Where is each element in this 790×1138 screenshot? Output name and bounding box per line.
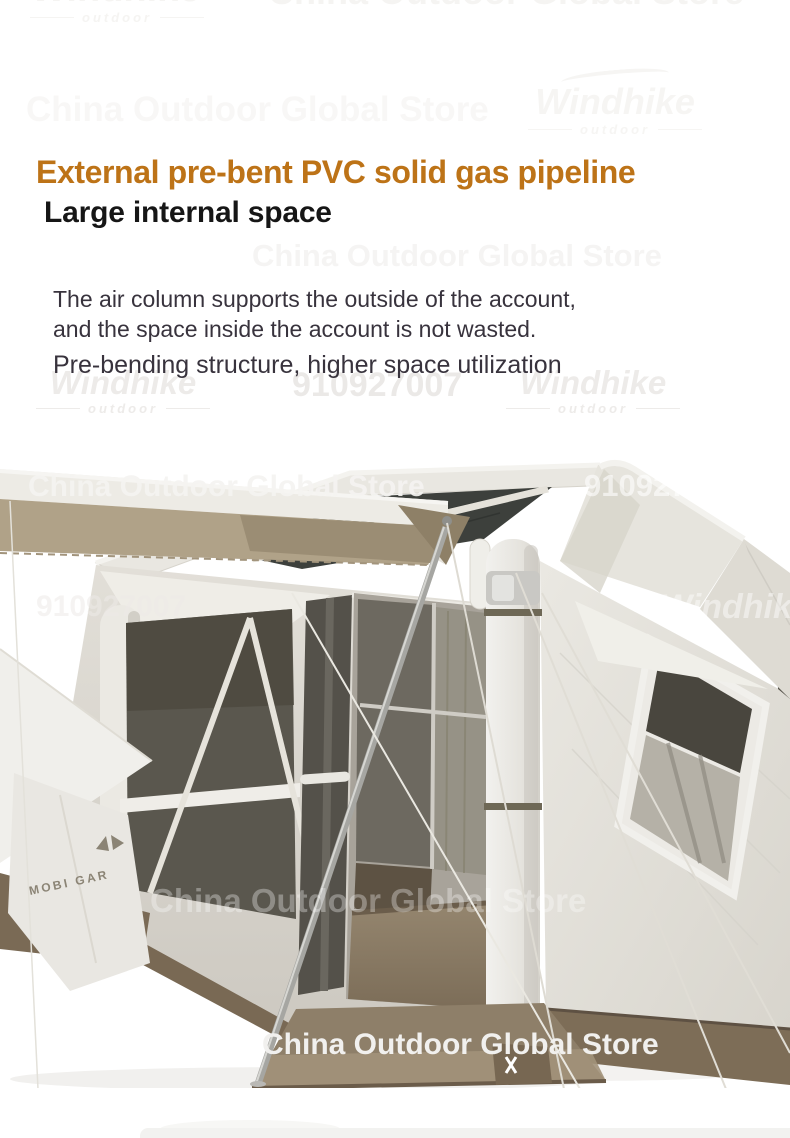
watermark-brand-sub: outdoor [36, 402, 210, 415]
watermark-store-row3: China Outdoor Global Store [252, 240, 662, 271]
watermark-store-photo-bottom: China Outdoor Global Store [262, 1030, 692, 1060]
watermark-store-photo-floor: China Outdoor Global Store [150, 884, 586, 917]
watermark-store-top-right: China Outdoor Global Store [268, 0, 744, 10]
watermark-storeid-photo-top: 910927007 [584, 470, 739, 501]
watermark-windhike-top-left: Windhike outdoor [30, 0, 204, 24]
watermark-store-row2: China Outdoor Global Store [26, 92, 489, 127]
column-strap [484, 803, 542, 810]
watermark-brand-sub: outdoor [30, 11, 204, 24]
body-line-1: The air column supports the outside of t… [53, 284, 576, 314]
body-line-3: Pre-bending structure, higher space util… [53, 349, 576, 381]
watermark-brand-word: Windhike [528, 84, 702, 120]
heading-secondary: Large internal space [44, 196, 332, 230]
watermark-brand-word: Windhike [30, 0, 204, 8]
body-copy: The air column supports the outside of t… [53, 284, 576, 381]
watermark-store-photo-top: China Outdoor Global Store [28, 472, 425, 502]
next-section-band [140, 1128, 790, 1138]
watermark-windhike-photo-right: Windhike [660, 590, 790, 624]
watermark-windhike-row2: Windhike outdoor [528, 70, 702, 136]
watermark-brand-sub: outdoor [528, 123, 702, 136]
watermark-brand-sub: outdoor [506, 402, 680, 415]
product-description-page: Windhike outdoor China Outdoor Global St… [0, 0, 790, 1138]
heading-primary: External pre-bent PVC solid gas pipeline [36, 154, 635, 191]
body-line-2: and the space inside the account is not … [53, 314, 576, 344]
tent-doorway-interior [346, 593, 486, 1009]
watermark-storeid-photo-left: 910927007 [36, 592, 186, 622]
tent-photo: MOBI GAR [0, 443, 790, 1088]
